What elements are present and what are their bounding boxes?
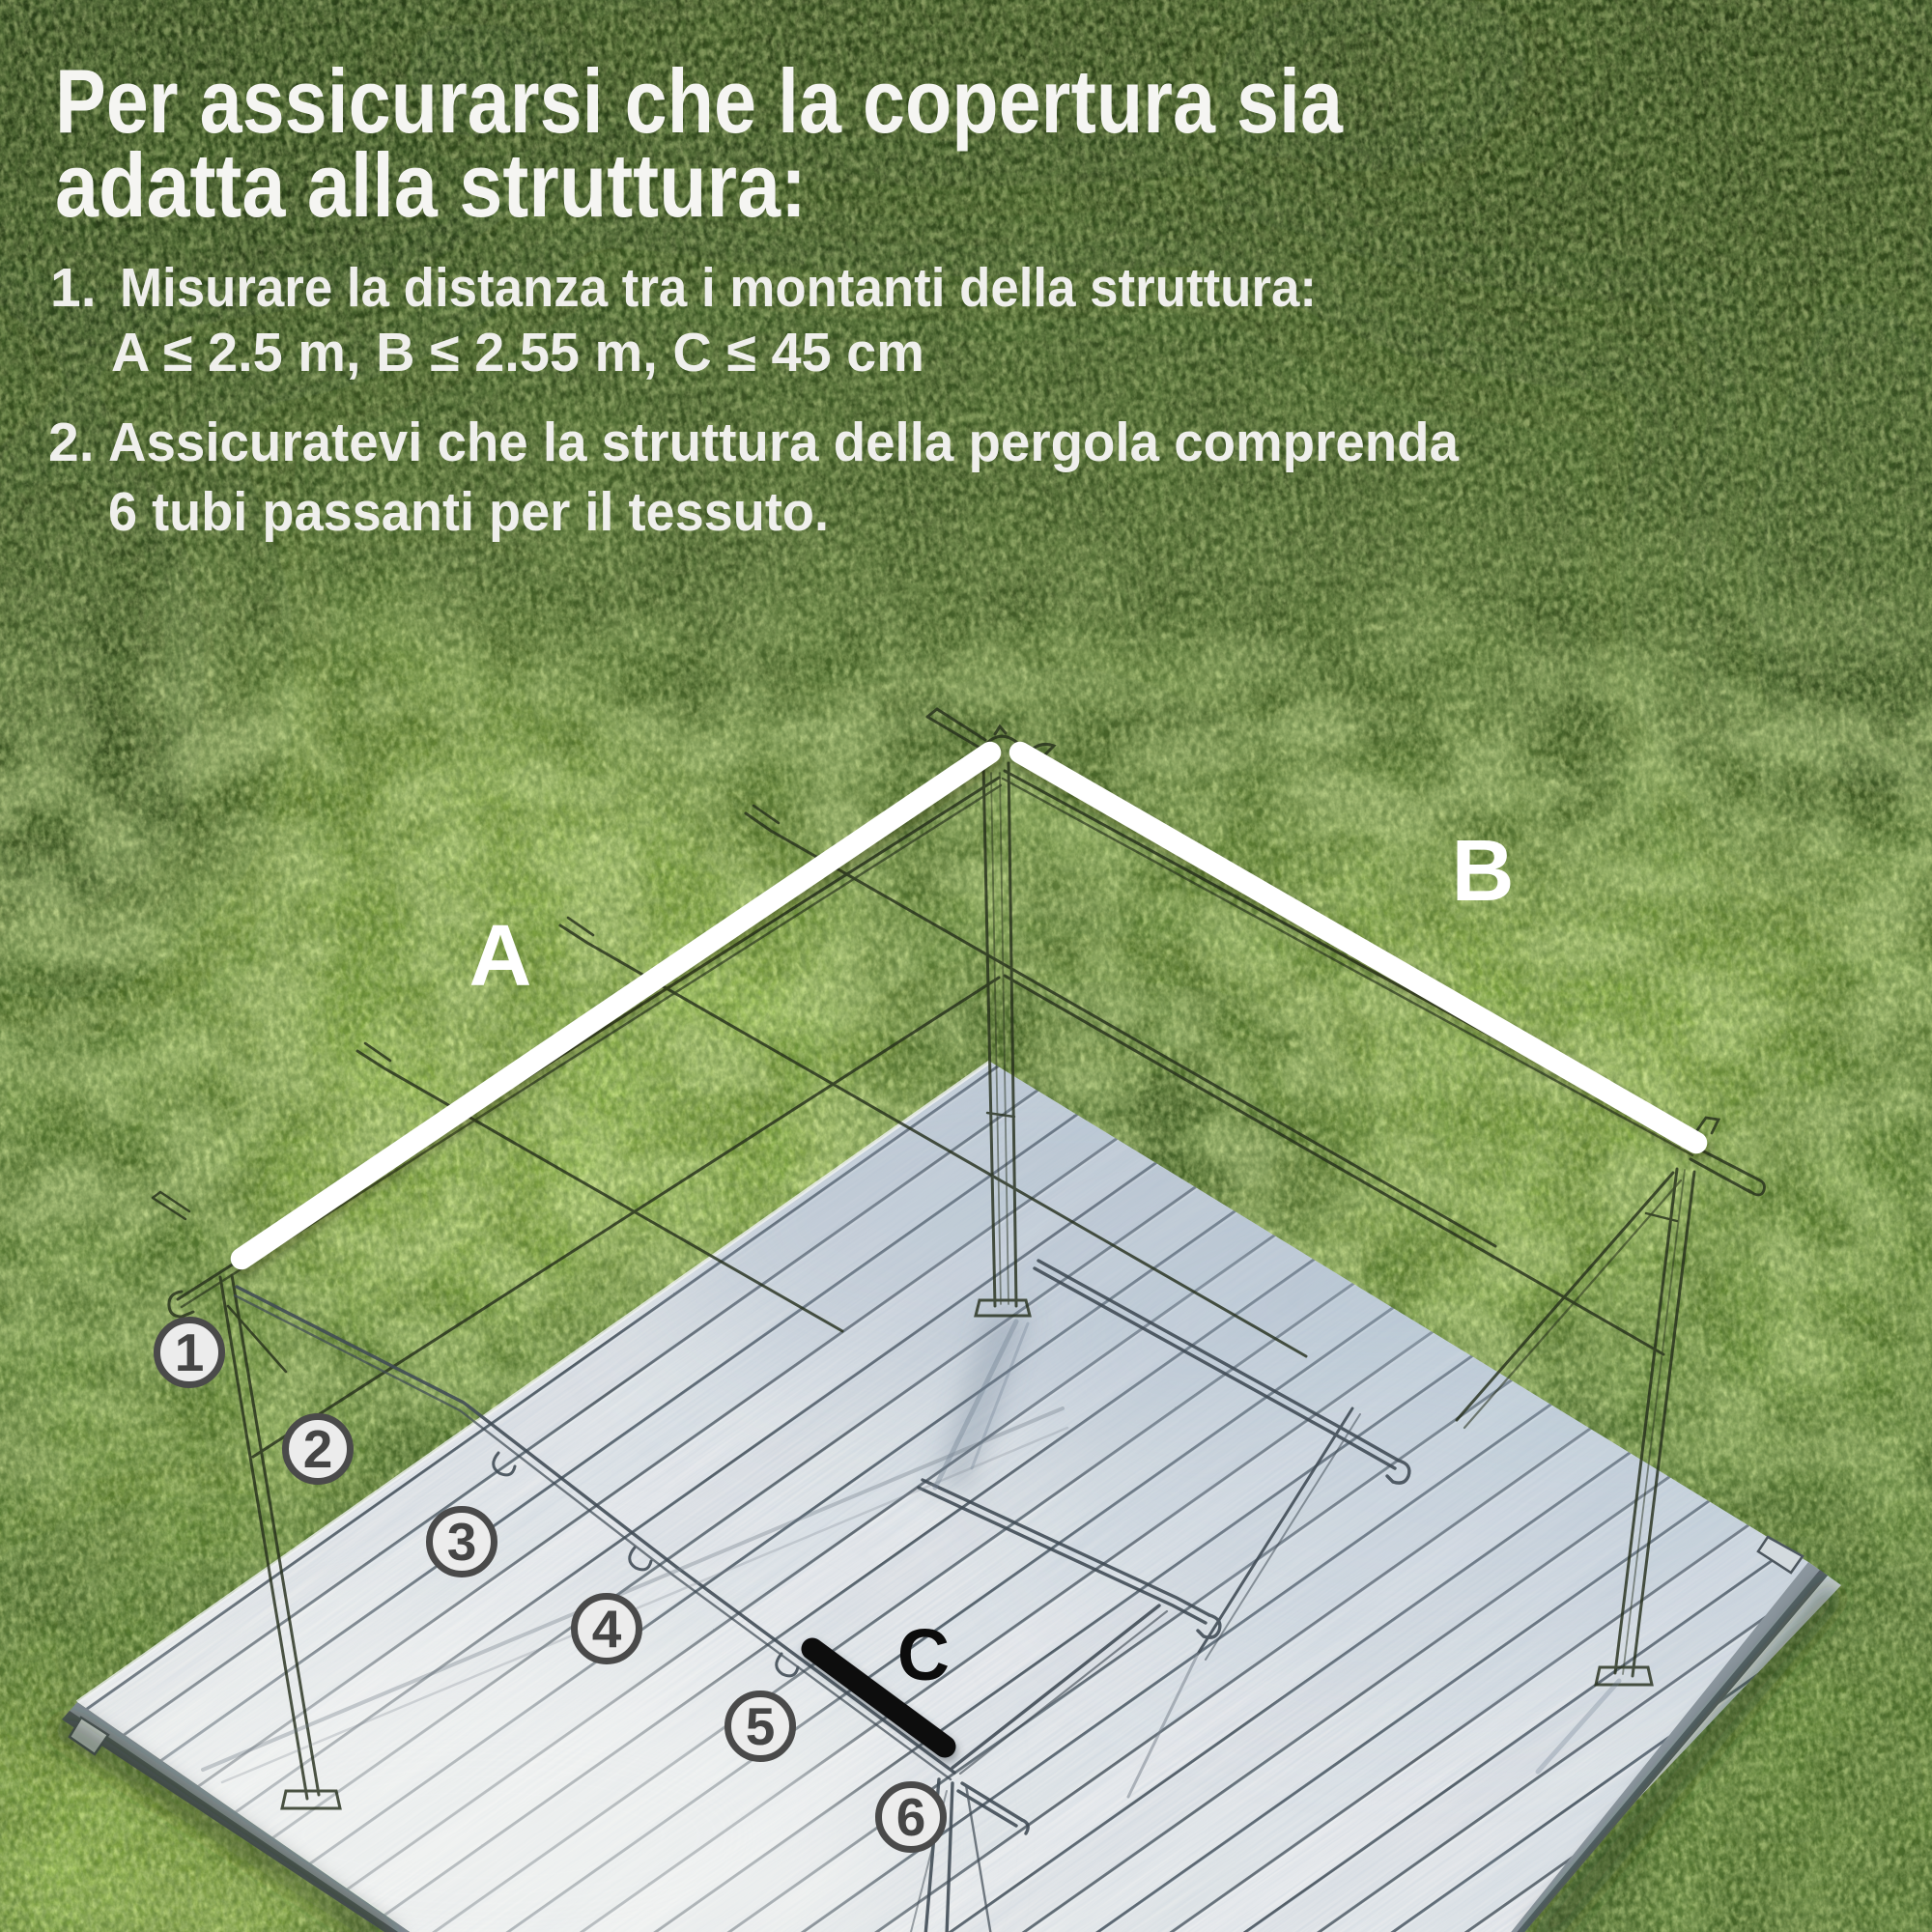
svg-text:1: 1	[175, 1322, 205, 1382]
svg-text:5: 5	[746, 1696, 776, 1756]
svg-text:2: 2	[303, 1419, 333, 1479]
svg-text:B: B	[1452, 823, 1515, 920]
svg-text:Assicuratevi che la struttura: Assicuratevi che la struttura della perg…	[108, 412, 1460, 473]
svg-text:C: C	[897, 1614, 950, 1695]
svg-text:A ≤ 2.5 m, B ≤ 2.55 m, C ≤ 45: A ≤ 2.5 m, B ≤ 2.55 m, C ≤ 45 cm	[111, 322, 924, 384]
svg-text:1.: 1.	[50, 257, 97, 319]
svg-text:A: A	[469, 908, 532, 1005]
svg-text:4: 4	[592, 1599, 622, 1659]
svg-text:2.: 2.	[48, 412, 95, 473]
svg-text:adatta alla struttura:: adatta alla struttura:	[55, 134, 807, 236]
svg-text:6 tubi passanti per il tessuto: 6 tubi passanti per il tessuto.	[108, 481, 829, 543]
svg-text:Misurare la distanza tra i mon: Misurare la distanza tra i montanti dell…	[120, 257, 1317, 319]
svg-text:6: 6	[896, 1787, 926, 1847]
svg-text:3: 3	[447, 1512, 477, 1572]
